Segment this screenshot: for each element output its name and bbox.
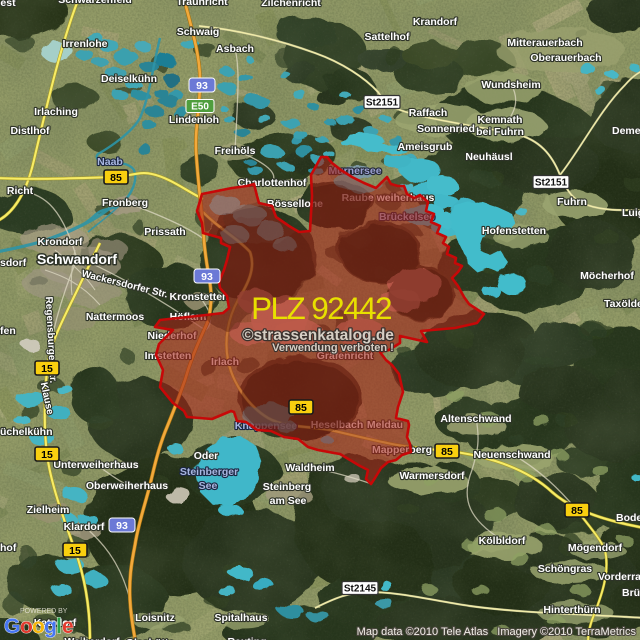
svg-text:Klardorf: Klardorf: [64, 521, 105, 533]
svg-text:Altenschwand: Altenschwand: [440, 413, 511, 425]
svg-text:Sattelhof: Sattelhof: [365, 31, 410, 43]
svg-text:Fuhrn: Fuhrn: [557, 196, 587, 208]
svg-text:Neuenschwand: Neuenschwand: [473, 449, 550, 461]
svg-text:Vorderrandsberg: Vorderrandsberg: [598, 571, 640, 583]
svg-text:Hofenstetten: Hofenstetten: [482, 225, 546, 237]
svg-text:Schwandorf: Schwandorf: [37, 251, 117, 267]
svg-text:Fronberg: Fronberg: [102, 197, 148, 209]
svg-text:Sonnenried: Sonnenried: [417, 123, 475, 135]
svg-text:Taxöldern: Taxöldern: [604, 298, 640, 310]
svg-text:15: 15: [41, 363, 53, 375]
svg-text:Nattermoos: Nattermoos: [86, 311, 145, 323]
svg-text:o: o: [32, 615, 45, 638]
svg-text:Mitterauerbach: Mitterauerbach: [507, 37, 582, 49]
svg-text:Asbach: Asbach: [216, 43, 254, 55]
svg-text:85: 85: [110, 172, 122, 184]
svg-text:Steinberg: Steinberg: [263, 481, 311, 493]
svg-text:fen: fen: [0, 325, 16, 337]
svg-text:Neuhäusl: Neuhäusl: [465, 151, 512, 163]
svg-text:Krondorf: Krondorf: [38, 236, 83, 248]
svg-text:Luigendorf: Luigendorf: [622, 207, 640, 219]
svg-text:Reuting: Reuting: [227, 636, 266, 640]
svg-text:G: G: [4, 615, 20, 638]
svg-text:Kölbldorf: Kölbldorf: [479, 535, 526, 547]
svg-text:Schöngras: Schöngras: [538, 563, 592, 575]
svg-text:üchelkühn: üchelkühn: [0, 426, 53, 438]
svg-text:Waldheim: Waldheim: [285, 462, 334, 474]
svg-text:Kemnath: Kemnath: [478, 114, 523, 126]
svg-text:Prissath: Prissath: [144, 226, 185, 238]
svg-text:Kronstetten: Kronstetten: [170, 291, 229, 303]
svg-text:Oberweiherhaus: Oberweiherhaus: [86, 480, 168, 492]
svg-text:est: est: [0, 0, 16, 9]
svg-text:hof: hof: [0, 542, 17, 554]
svg-text:Irlaching: Irlaching: [34, 106, 78, 118]
svg-text:Richt: Richt: [7, 185, 34, 197]
svg-text:Oder: Oder: [194, 450, 219, 462]
svg-text:E50: E50: [191, 102, 209, 113]
svg-text:Zielheim: Zielheim: [27, 504, 70, 516]
svg-text:Traunricht: Traunricht: [176, 0, 228, 8]
svg-text:93: 93: [201, 271, 213, 283]
svg-text:Verwendung verboten !: Verwendung verboten !: [272, 342, 394, 354]
svg-text:See: See: [199, 480, 218, 492]
svg-text:15: 15: [69, 545, 81, 557]
svg-text:e: e: [62, 615, 74, 638]
svg-text:Spitalhaus: Spitalhaus: [214, 612, 267, 624]
svg-text:St2151: St2151: [366, 98, 399, 109]
svg-text:Schwaig: Schwaig: [177, 26, 220, 38]
svg-text:15: 15: [41, 449, 53, 461]
svg-text:g: g: [44, 615, 57, 638]
svg-text:St2145: St2145: [344, 584, 377, 595]
svg-text:Bodenstein: Bodenstein: [616, 512, 640, 524]
svg-text:am See: am See: [270, 495, 307, 507]
svg-text:Unterweiherhaus: Unterweiherhaus: [53, 459, 138, 471]
svg-text:Hinterthürn: Hinterthürn: [543, 604, 600, 616]
svg-text:Deiselkühn: Deiselkühn: [101, 73, 157, 85]
svg-text:Ameisgrub: Ameisgrub: [398, 141, 453, 153]
svg-text:Map data ©2010 Tele Atlas Im: Map data ©2010 Tele Atlas Imagery ©2010 …: [357, 626, 637, 638]
svg-text:Raffach: Raffach: [409, 107, 448, 119]
svg-text:St2151: St2151: [535, 178, 568, 189]
svg-text:85: 85: [441, 446, 453, 458]
svg-text:Krandorf: Krandorf: [413, 16, 458, 28]
svg-text:Oberauerbach: Oberauerbach: [530, 52, 601, 64]
svg-text:85: 85: [571, 505, 583, 517]
svg-text:Lindenloh: Lindenloh: [169, 114, 219, 126]
svg-text:Irrenlohe: Irrenlohe: [63, 38, 108, 50]
svg-text:Zilchenricht: Zilchenricht: [261, 0, 321, 9]
svg-text:Möcherhof: Möcherhof: [580, 270, 634, 282]
svg-text:POWERED BY: POWERED BY: [20, 608, 68, 615]
svg-text:Freihöls: Freihöls: [215, 145, 256, 157]
svg-text:Naab: Naab: [97, 156, 123, 168]
svg-text:sdorf: sdorf: [0, 257, 27, 269]
svg-text:85: 85: [295, 402, 307, 414]
svg-text:Warmersdorf: Warmersdorf: [400, 470, 465, 482]
svg-text:Wundsheim: Wundsheim: [481, 79, 540, 91]
svg-text:l: l: [56, 615, 62, 638]
svg-text:Demelsdorf: Demelsdorf: [612, 125, 640, 137]
svg-text:Brünst: Brünst: [622, 587, 640, 599]
svg-text:93: 93: [116, 520, 128, 532]
svg-text:bei Fuhrn: bei Fuhrn: [476, 126, 524, 138]
svg-text:Distlhof: Distlhof: [10, 125, 50, 137]
svg-text:Mögendorf: Mögendorf: [568, 542, 623, 554]
svg-text:Loisnitz: Loisnitz: [135, 612, 175, 624]
svg-text:PLZ 92442: PLZ 92442: [251, 290, 391, 326]
svg-text:o: o: [20, 615, 33, 638]
svg-text:Steinberger: Steinberger: [180, 466, 238, 478]
svg-text:93: 93: [196, 80, 208, 92]
svg-text:Schwarzenfeld: Schwarzenfeld: [58, 0, 132, 6]
